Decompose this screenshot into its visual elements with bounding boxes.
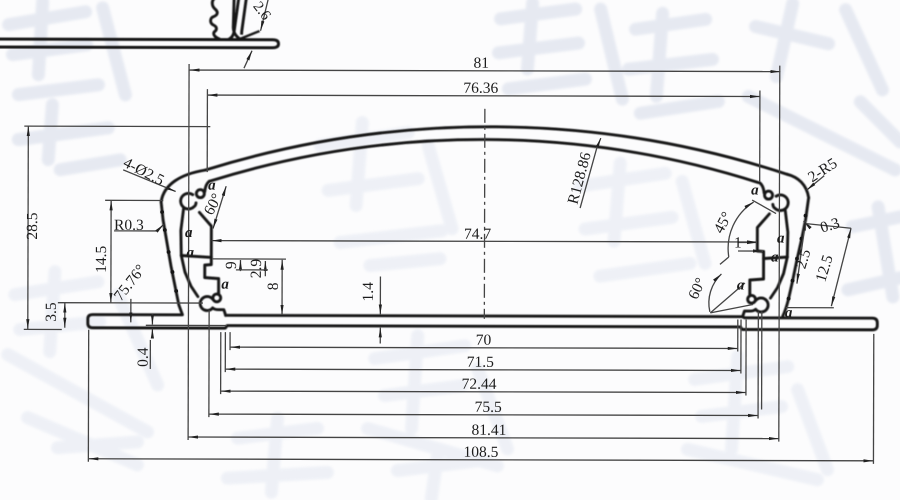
svg-text:a: a	[186, 245, 194, 261]
svg-text:1: 1	[734, 234, 742, 251]
svg-text:8: 8	[265, 282, 282, 290]
svg-text:a: a	[785, 305, 793, 321]
svg-text:2.5: 2.5	[793, 247, 815, 271]
svg-text:4-Ø2.5: 4-Ø2.5	[120, 154, 167, 189]
svg-text:71.5: 71.5	[467, 354, 494, 371]
svg-text:70: 70	[476, 332, 492, 349]
svg-text:a: a	[751, 183, 759, 199]
svg-text:a: a	[771, 250, 779, 266]
svg-text:28.5: 28.5	[24, 212, 41, 239]
svg-text:a: a	[208, 178, 216, 194]
svg-text:1.4: 1.4	[360, 282, 377, 302]
svg-text:a: a	[185, 225, 193, 241]
svg-text:75.5: 75.5	[475, 399, 502, 416]
svg-text:60°: 60°	[685, 275, 710, 302]
svg-text:0.4: 0.4	[135, 347, 152, 367]
svg-text:3.5: 3.5	[43, 302, 60, 322]
svg-text:45°: 45°	[711, 209, 736, 236]
svg-text:2.9: 2.9	[248, 259, 265, 279]
svg-text:9: 9	[223, 261, 240, 269]
svg-text:a: a	[777, 231, 785, 247]
svg-text:81: 81	[473, 55, 489, 72]
svg-text:a: a	[221, 277, 229, 293]
svg-text:74.7: 74.7	[464, 226, 491, 243]
svg-text:12.5: 12.5	[812, 253, 836, 284]
svg-text:72.44: 72.44	[462, 376, 497, 393]
svg-text:108.5: 108.5	[463, 444, 498, 461]
svg-text:0.3: 0.3	[818, 215, 842, 237]
svg-text:2.6: 2.6	[249, 0, 273, 24]
svg-text:76.36: 76.36	[463, 80, 498, 97]
svg-text:2-R5: 2-R5	[805, 155, 840, 186]
svg-text:R0.3: R0.3	[114, 217, 144, 234]
svg-text:a: a	[737, 277, 745, 293]
svg-text:14.5: 14.5	[93, 245, 110, 272]
svg-text:75.76°: 75.76°	[111, 262, 150, 305]
svg-text:81.41: 81.41	[472, 422, 507, 439]
